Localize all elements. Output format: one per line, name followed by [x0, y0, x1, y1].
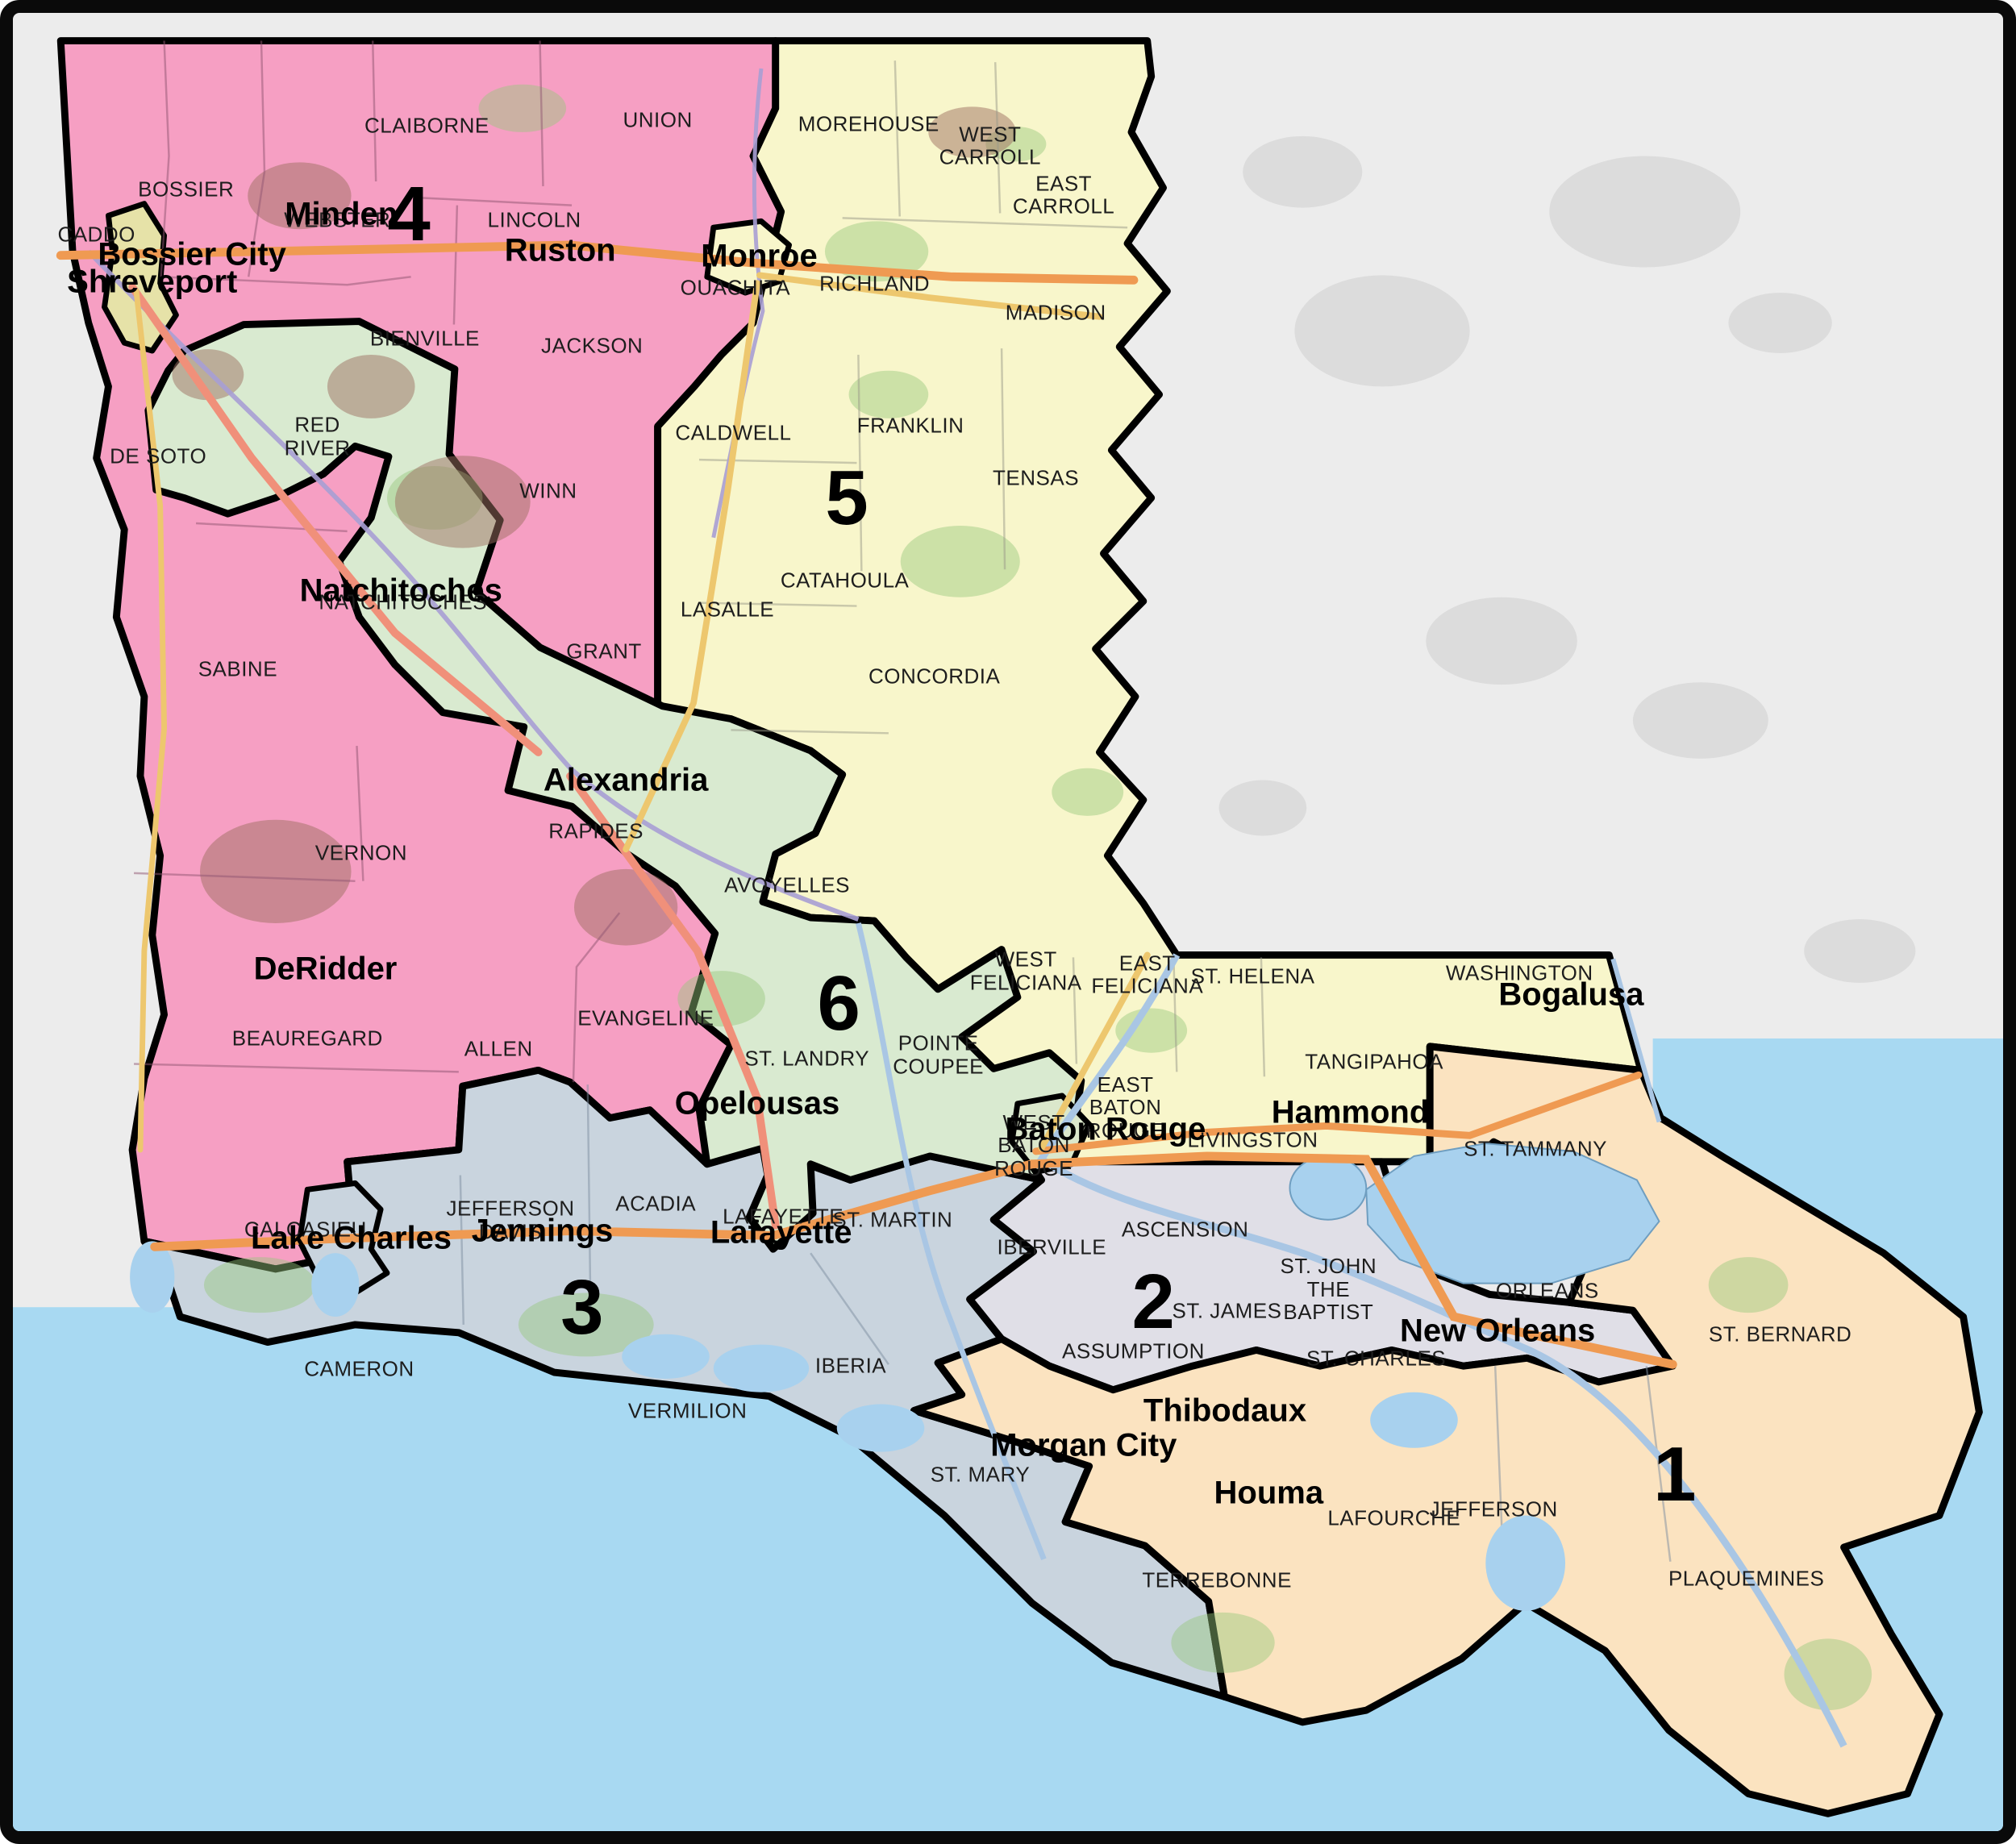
lake-maurepas [1289, 1156, 1366, 1220]
calcasieu-lake [311, 1253, 359, 1317]
lake-salvador [1370, 1392, 1458, 1448]
outside-land-patches [1219, 136, 1916, 983]
sabine-lake [130, 1241, 174, 1313]
atchafalaya-bay [837, 1405, 925, 1452]
louisiana-district-map [13, 13, 2003, 1831]
vermilion-bay [714, 1345, 809, 1392]
white-lake [622, 1334, 710, 1379]
barataria-bay [1485, 1516, 1565, 1611]
map-frame: CADDO BOSSIER WEBSTER CLAIBORNE UNION MO… [0, 0, 2016, 1844]
